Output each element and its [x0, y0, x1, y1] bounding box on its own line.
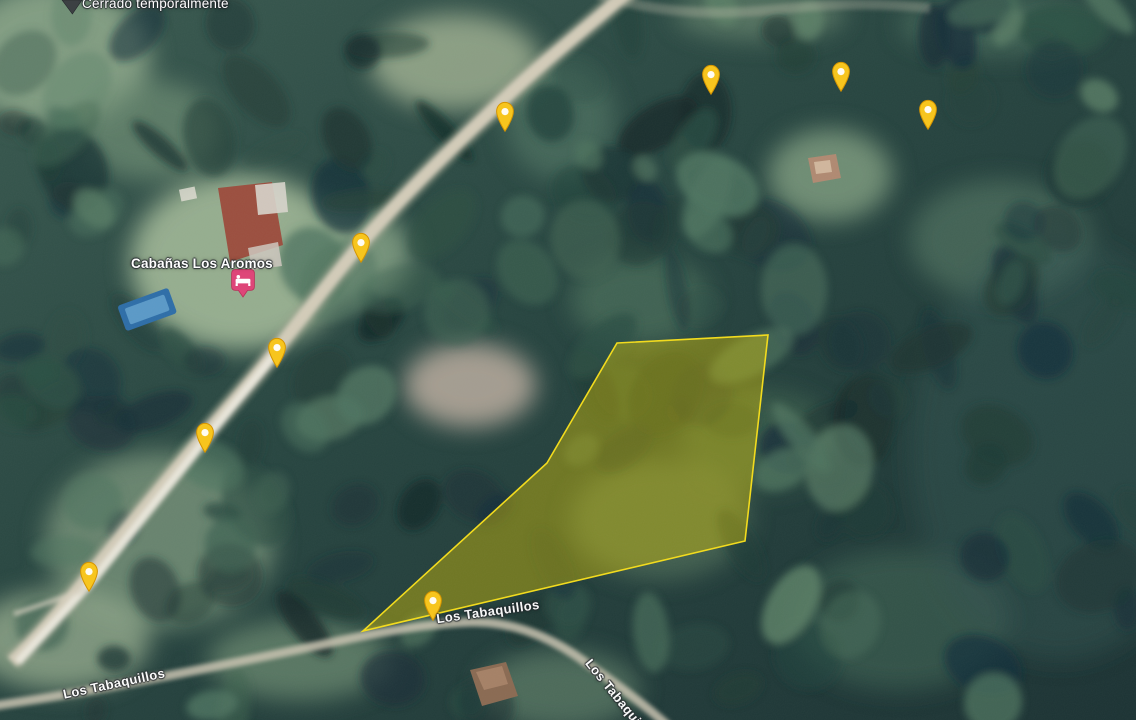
- lodging-pin-icon[interactable]: [230, 268, 256, 298]
- map-marker-icon[interactable]: [78, 561, 100, 592]
- image-grain: [0, 0, 1136, 720]
- map-marker-icon[interactable]: [350, 232, 372, 263]
- map-marker-icon[interactable]: [494, 101, 516, 132]
- closed-status-label: Cerrado temporalmente: [82, 0, 229, 11]
- closed-poi-pin-tip-icon[interactable]: [60, 0, 84, 15]
- map-marker-icon[interactable]: [700, 64, 722, 95]
- map-marker-icon[interactable]: [194, 422, 216, 453]
- satellite-imagery: [0, 0, 1136, 720]
- map-marker-icon[interactable]: [266, 337, 288, 368]
- satellite-map[interactable]: Cerrado temporalmente Cabañas Los Aromos…: [0, 0, 1136, 720]
- map-marker-icon[interactable]: [830, 61, 852, 92]
- map-marker-icon[interactable]: [917, 99, 939, 130]
- poi-label-cabanas-los-aromos[interactable]: Cabañas Los Aromos: [131, 256, 273, 271]
